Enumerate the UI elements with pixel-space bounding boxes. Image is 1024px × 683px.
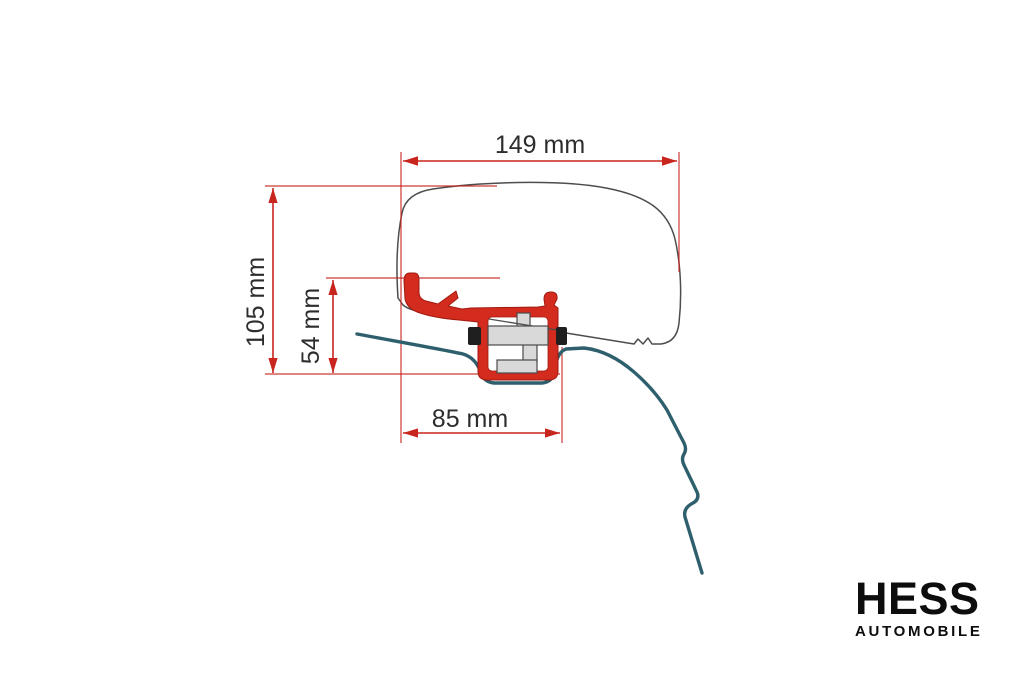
technical-drawing-canvas: 149 mm 105 mm 54 mm 85 mm — [0, 0, 1024, 683]
dimension-label-bottom-width: 85 mm — [432, 405, 508, 433]
bolt-end-left — [468, 327, 481, 345]
logo-name: HESS — [855, 576, 983, 621]
arrow-up-icon — [268, 188, 277, 203]
arrow-left-icon — [403, 156, 418, 166]
dimension-label-top-width: 149 mm — [495, 131, 585, 159]
logo-subtitle: AUTOMOBILE — [855, 624, 983, 639]
dimension-label-inner-height: 54 mm — [297, 288, 325, 364]
dimension-label-total-height: 105 mm — [242, 257, 270, 347]
arrow-right-icon — [662, 156, 677, 166]
mounting-plate-foot — [497, 360, 537, 373]
clamp-bar — [488, 326, 548, 345]
logo: HESS AUTOMOBILE — [855, 576, 983, 639]
arrow-left-icon — [403, 428, 418, 437]
arrow-right-icon — [545, 428, 560, 437]
arrow-down-icon — [328, 358, 337, 373]
bolt-end-right — [556, 327, 567, 345]
arrow-up-icon — [328, 280, 337, 295]
arrow-down-icon — [268, 358, 277, 373]
